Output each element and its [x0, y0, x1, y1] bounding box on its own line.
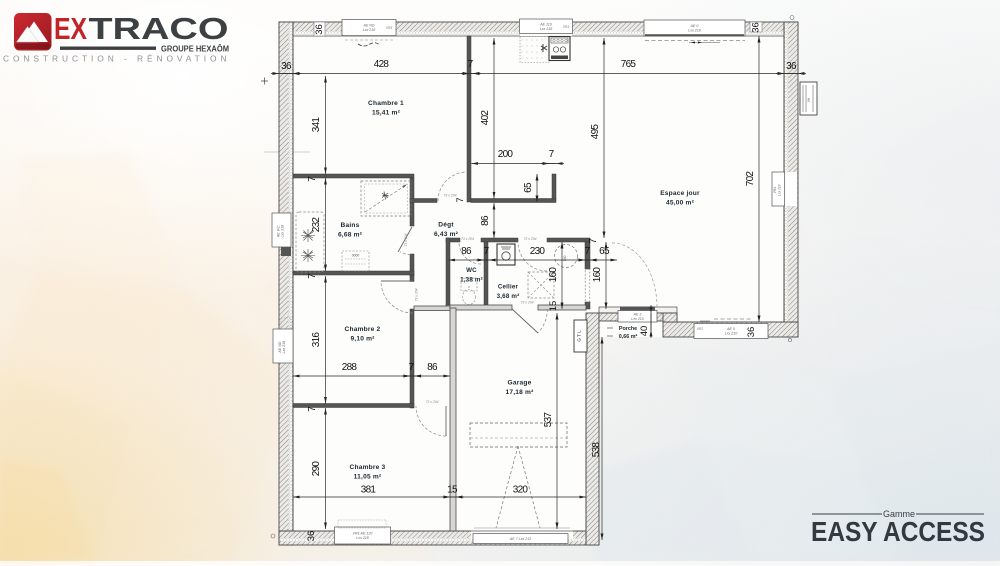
- svg-text:Lxx 218: Lxx 218: [281, 225, 285, 238]
- svg-text:Lxx 210: Lxx 210: [631, 317, 644, 321]
- svg-text:73 x 204: 73 x 204: [415, 288, 419, 301]
- svg-text:3,68 m²: 3,68 m²: [497, 293, 520, 300]
- svg-text:40: 40: [639, 326, 650, 337]
- svg-text:VR2: VR2: [697, 327, 703, 331]
- svg-text:AE 5: AE 5: [726, 327, 735, 331]
- svg-text:Chambre 3: Chambre 3: [350, 464, 386, 471]
- svg-text:65: 65: [599, 246, 610, 257]
- svg-text:36: 36: [281, 61, 292, 72]
- svg-text:11,05 m²: 11,05 m²: [354, 474, 382, 481]
- svg-text:232: 232: [311, 217, 322, 233]
- svg-text:65: 65: [523, 182, 534, 193]
- svg-text:86: 86: [461, 246, 472, 257]
- svg-text:15,41 m²: 15,41 m²: [372, 110, 401, 117]
- svg-text:Chambre 1: Chambre 1: [368, 100, 404, 107]
- svg-text:36: 36: [786, 61, 797, 72]
- svg-text:0,66 m²: 0,66 m²: [619, 334, 638, 340]
- svg-text:Lxx 218: Lxx 218: [356, 536, 369, 540]
- svg-text:7: 7: [307, 176, 318, 182]
- svg-text:15: 15: [447, 485, 458, 496]
- svg-text:7: 7: [307, 406, 318, 412]
- svg-text:36: 36: [751, 22, 762, 33]
- svg-text:73 x 204: 73 x 204: [425, 400, 438, 404]
- svg-text:7: 7: [307, 273, 318, 279]
- svg-text:AE 119: AE 119: [539, 22, 552, 26]
- svg-text:VR5: VR5: [386, 26, 392, 30]
- svg-text:Garage: Garage: [508, 380, 532, 387]
- svg-text:VR1 AE 120: VR1 AE 120: [353, 532, 373, 536]
- svg-text:495: 495: [590, 124, 601, 140]
- svg-text:Espace jour: Espace jour: [660, 190, 700, 197]
- svg-text:537: 537: [543, 412, 554, 428]
- svg-text:AE ND: AE ND: [363, 24, 375, 28]
- svg-text:GROUPE HEXAÔM: GROUPE HEXAÔM: [161, 43, 229, 54]
- svg-text:TRACO: TRACO: [89, 11, 229, 46]
- svg-text:Lxx 218: Lxx 218: [540, 27, 553, 31]
- svg-text:180: 180: [563, 256, 567, 262]
- svg-text:15: 15: [548, 301, 559, 312]
- svg-text:73 x 204: 73 x 204: [523, 237, 536, 241]
- svg-text:428: 428: [374, 59, 390, 70]
- svg-text:Cellier: Cellier: [498, 284, 519, 291]
- svg-text:9,10 m²: 9,10 m²: [350, 336, 375, 343]
- svg-text:o: o: [468, 285, 470, 289]
- svg-text:765: 765: [621, 59, 637, 70]
- svg-text:7: 7: [588, 238, 599, 244]
- svg-text:VH: VH: [807, 97, 811, 102]
- svg-text:EASY ACCESS: EASY ACCESS: [811, 516, 985, 547]
- svg-text:86: 86: [427, 362, 438, 373]
- svg-text:G T L: G T L: [577, 330, 582, 342]
- svg-text:6,43 m²: 6,43 m²: [434, 231, 459, 238]
- svg-text:AE 3: AE 3: [633, 312, 642, 316]
- svg-text:Lxx 218: Lxx 218: [363, 28, 376, 32]
- svg-text:Dégt: Dégt: [438, 222, 454, 229]
- svg-text:6,68 m²: 6,68 m²: [338, 232, 363, 239]
- svg-text:1,38 m²: 1,38 m²: [460, 277, 483, 284]
- svg-text:45,00 m²: 45,00 m²: [666, 200, 695, 207]
- svg-text:73 x 204: 73 x 204: [443, 194, 456, 198]
- svg-text:Lxx 218: Lxx 218: [282, 341, 286, 354]
- svg-text:288: 288: [342, 362, 358, 373]
- svg-text:7: 7: [455, 197, 466, 202]
- svg-text:36: 36: [314, 24, 325, 35]
- svg-text:36: 36: [306, 531, 317, 542]
- svg-text:702: 702: [745, 171, 756, 187]
- svg-text:36: 36: [746, 327, 757, 338]
- svg-text:290: 290: [311, 461, 322, 477]
- svg-text:160: 160: [592, 267, 603, 283]
- svg-text:86: 86: [480, 215, 491, 226]
- svg-text:73 x 204: 73 x 204: [520, 301, 533, 305]
- svg-text:73 x 204: 73 x 204: [461, 237, 474, 241]
- svg-text:316: 316: [311, 332, 322, 348]
- svg-text:Chambre 2: Chambre 2: [345, 326, 381, 333]
- svg-text:160: 160: [548, 267, 559, 283]
- svg-text:17,18 m²: 17,18 m²: [506, 389, 535, 396]
- svg-text:538: 538: [591, 442, 602, 458]
- svg-text:AE 7 Lxx 212: AE 7 Lxx 212: [509, 537, 531, 541]
- svg-text:402: 402: [480, 110, 491, 126]
- svg-text:73 x 204: 73 x 204: [404, 233, 408, 246]
- svg-text:Lxx 210: Lxx 210: [725, 332, 738, 336]
- svg-text:Bains: Bains: [341, 222, 360, 229]
- svg-text:EX: EX: [54, 11, 87, 46]
- svg-text:381: 381: [361, 485, 377, 496]
- svg-text:Lxx 218: Lxx 218: [688, 29, 701, 33]
- svg-text:0000: 0000: [352, 254, 360, 258]
- svg-text:VR3: VR3: [563, 25, 569, 29]
- svg-text:341: 341: [311, 117, 322, 133]
- svg-text:WC: WC: [466, 267, 477, 274]
- svg-text:320: 320: [513, 485, 529, 496]
- svg-text:CONSTRUCTION - RÉNOVATION: CONSTRUCTION - RÉNOVATION: [3, 54, 229, 64]
- svg-text:230: 230: [530, 246, 546, 257]
- svg-text:Lxx 218: Lxx 218: [777, 184, 781, 195]
- svg-text:200: 200: [498, 149, 514, 160]
- svg-text:Porche: Porche: [619, 326, 637, 332]
- svg-text:AE 0: AE 0: [690, 24, 699, 28]
